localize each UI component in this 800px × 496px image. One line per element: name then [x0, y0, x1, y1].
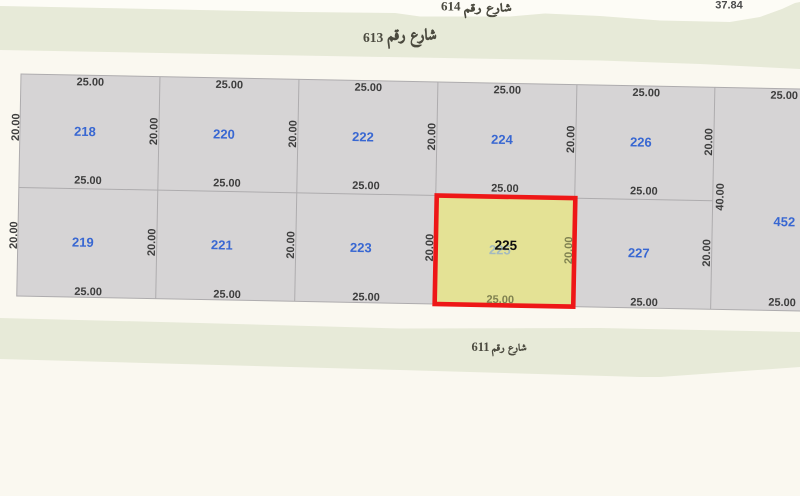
svg-text:25.00: 25.00 [491, 183, 519, 196]
svg-text:20.00: 20.00 [148, 117, 161, 145]
svg-text:219: 219 [72, 235, 94, 250]
svg-text:452: 452 [773, 214, 795, 229]
svg-text:37.84: 37.84 [715, 0, 743, 12]
svg-text:227: 227 [628, 245, 650, 260]
svg-text:20.00: 20.00 [563, 236, 576, 264]
svg-text:221: 221 [211, 237, 233, 252]
svg-text:224: 224 [491, 132, 514, 147]
svg-text:25.00: 25.00 [354, 82, 382, 95]
svg-text:614: 614 [441, 0, 461, 14]
svg-text:226: 226 [630, 134, 652, 149]
svg-text:223: 223 [350, 240, 372, 255]
svg-text:20.00: 20.00 [146, 228, 159, 256]
svg-text:25.00: 25.00 [74, 286, 102, 299]
svg-text:25.00: 25.00 [630, 185, 658, 198]
svg-text:40.00: 40.00 [714, 183, 727, 211]
svg-text:25.00: 25.00 [76, 76, 104, 89]
svg-text:20.00: 20.00 [10, 113, 23, 141]
svg-text:222: 222 [352, 129, 374, 144]
svg-text:225: 225 [494, 238, 517, 253]
svg-text:25.00: 25.00 [770, 90, 798, 103]
svg-text:20.00: 20.00 [703, 128, 716, 156]
svg-text:25.00: 25.00 [632, 87, 660, 100]
svg-text:613: 613 [363, 30, 384, 45]
svg-text:220: 220 [213, 126, 235, 141]
svg-text:25.00: 25.00 [630, 297, 658, 310]
svg-text:20.00: 20.00 [285, 231, 298, 259]
svg-text:611: 611 [472, 340, 490, 354]
svg-text:25.00: 25.00 [213, 177, 241, 190]
svg-text:20.00: 20.00 [565, 125, 578, 153]
svg-text:25.00: 25.00 [213, 289, 241, 302]
svg-text:218: 218 [74, 124, 96, 139]
svg-text:25.00: 25.00 [486, 294, 514, 307]
svg-text:25.00: 25.00 [352, 180, 380, 193]
svg-text:25.00: 25.00 [768, 297, 796, 310]
svg-text:25.00: 25.00 [74, 175, 102, 188]
svg-text:20.00: 20.00 [8, 221, 21, 249]
svg-text:25.00: 25.00 [215, 79, 243, 92]
svg-text:25.00: 25.00 [352, 291, 380, 304]
svg-text:20.00: 20.00 [287, 120, 300, 148]
svg-text:20.00: 20.00 [701, 239, 714, 267]
svg-text:25.00: 25.00 [493, 84, 521, 97]
svg-text:20.00: 20.00 [426, 123, 439, 151]
